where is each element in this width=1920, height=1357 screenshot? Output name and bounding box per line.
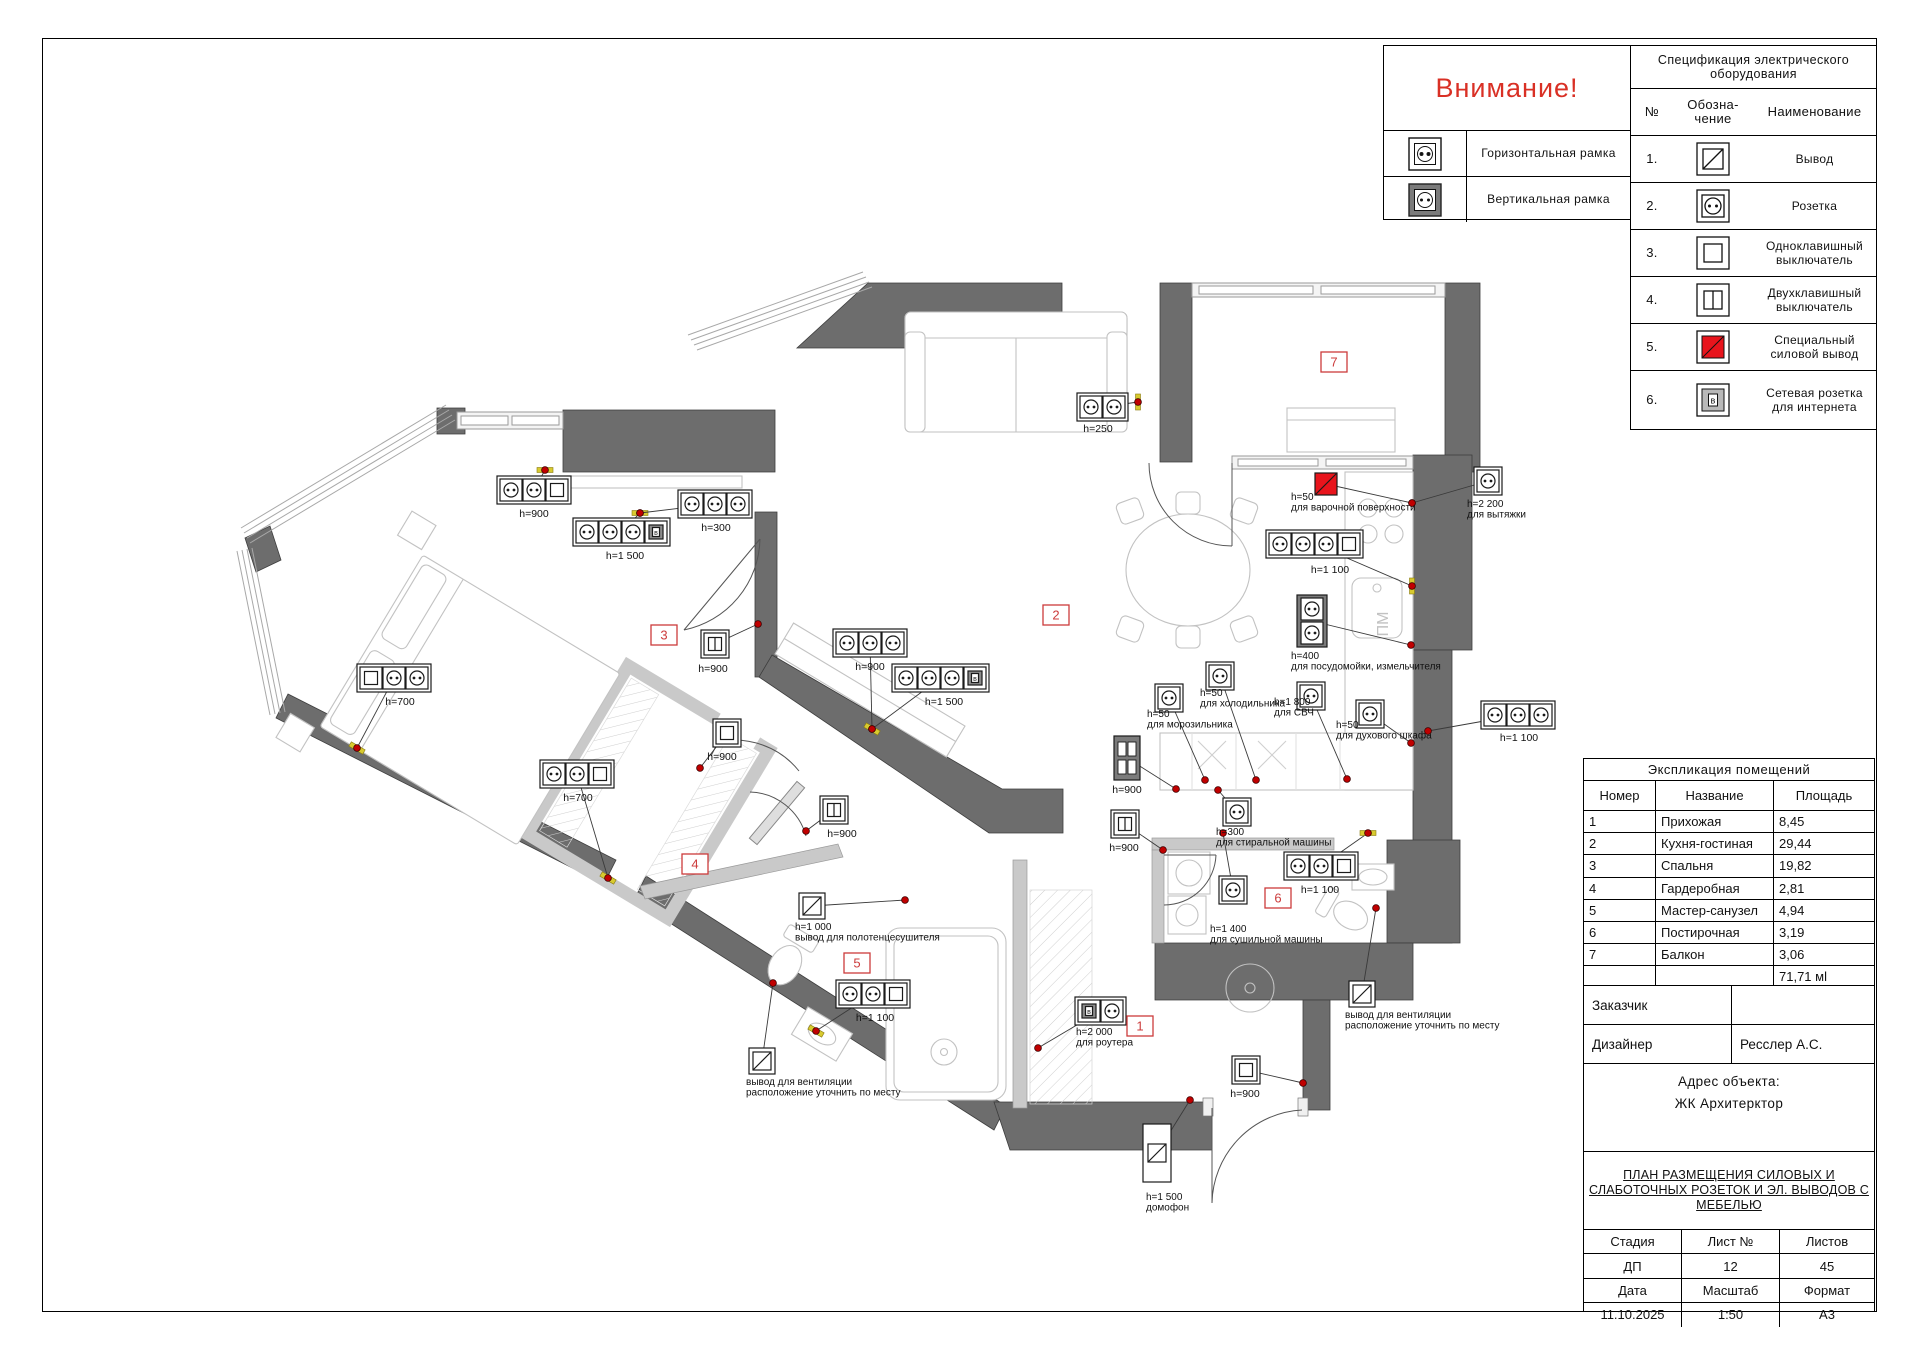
- spec-header-name: Наименование: [1753, 105, 1876, 119]
- spec-row: 4. Двухклавишный выключатель: [1631, 277, 1876, 324]
- svg-text:2: 2: [1052, 608, 1059, 623]
- svg-text:h=1 100: h=1 100: [1301, 884, 1339, 896]
- svg-text:h=900: h=900: [827, 828, 857, 840]
- svg-text:для морозильника: для морозильника: [1147, 720, 1233, 731]
- svg-text:для варочной поверхности: для варочной поверхности: [1291, 503, 1416, 514]
- device-washer-socket-300: [1223, 798, 1251, 826]
- svg-text:расположение уточнить по месту: расположение уточнить по месту: [1345, 1021, 1500, 1032]
- device-intercom-1500: [1143, 1124, 1171, 1182]
- device-right-sockets-1100: [1481, 701, 1555, 729]
- designer-label: Дизайнер: [1584, 1025, 1731, 1063]
- switch-double-icon: [1673, 282, 1753, 318]
- drawing-sheet: h=900вh=1 500h=300h=700h=700h=900h=900вh…: [0, 0, 1920, 1357]
- spec-header-num: №: [1631, 105, 1673, 119]
- svg-text:h=1 100: h=1 100: [856, 1012, 894, 1024]
- explication-row: 6Постирочная3,19: [1584, 922, 1874, 944]
- spec-row: 6. в Сетевая розетка для интернета: [1631, 371, 1876, 429]
- plan-text: ПМ: [1375, 612, 1392, 637]
- explication-row: 3Спальня19,82: [1584, 855, 1874, 877]
- svg-text:для посудомойки, измельчителя: для посудомойки, измельчителя: [1291, 662, 1441, 673]
- spec-row: 2. Розетка: [1631, 183, 1876, 230]
- svg-text:h=900: h=900: [698, 663, 728, 675]
- svg-text:h=50: h=50: [1336, 720, 1359, 731]
- device-hall-sockets-1500: в: [892, 664, 989, 692]
- svg-text:h=1 500: h=1 500: [1146, 1192, 1183, 1203]
- room-badge: 5: [844, 953, 870, 973]
- device-freezer-socket-50: [1155, 684, 1183, 712]
- spec-row: 5. Специальный силовой вывод: [1631, 324, 1876, 371]
- device-towel-dryer-out-1000: [799, 893, 825, 919]
- svg-text:h=1 400: h=1 400: [1210, 924, 1247, 935]
- spec-table: Спецификация электрического оборудования…: [1630, 45, 1877, 430]
- svg-text:h=50: h=50: [1200, 688, 1223, 699]
- svg-text:в: в: [1087, 1009, 1091, 1016]
- designer-row: Дизайнер Ресслер А.С.: [1584, 1025, 1874, 1064]
- svg-text:для духового шкафа: для духового шкафа: [1336, 730, 1432, 742]
- svg-text:в: в: [1710, 396, 1715, 406]
- device-bedroom-sockets-900: [497, 476, 571, 504]
- explication-table: Экспликация помещений Номер Название Пло…: [1583, 758, 1875, 989]
- svg-text:1: 1: [1136, 1019, 1143, 1034]
- svg-text:для холодильника: для холодильника: [1200, 699, 1286, 710]
- svg-text:7: 7: [1330, 355, 1337, 370]
- title-block: Заказчик Дизайнер Ресслер А.С. Адрес объ…: [1583, 985, 1875, 1312]
- attention-row: Горизонтальная рамка: [1384, 130, 1630, 176]
- vertical-frame-socket-icon: [1384, 177, 1467, 222]
- horizontal-frame-socket-icon: [1384, 131, 1467, 176]
- svg-text:h=400: h=400: [1291, 651, 1320, 662]
- room-badge: 3: [651, 625, 677, 645]
- device-laundry-sockets-1100: [1284, 852, 1358, 880]
- svg-text:h=900: h=900: [707, 751, 737, 763]
- device-bedroom-sockets-300: [678, 490, 752, 518]
- svg-text:h=50: h=50: [1291, 492, 1314, 503]
- svg-text:вывод для полотенцесушителя: вывод для полотенцесушителя: [795, 933, 940, 944]
- svg-text:h=900: h=900: [1230, 1088, 1260, 1100]
- room-badge: 1: [1127, 1016, 1153, 1036]
- svg-text:для СВЧ: для СВЧ: [1274, 708, 1314, 719]
- network-socket-icon: в: [1673, 382, 1753, 418]
- explication-row: 1Прихожая8,45: [1584, 811, 1874, 833]
- device-dryer-socket-1400: [1219, 876, 1247, 904]
- address-value: ЖК Архитерктор: [1675, 1096, 1784, 1111]
- svg-text:h=900: h=900: [855, 661, 885, 673]
- svg-text:h=700: h=700: [385, 696, 415, 708]
- device-kitchen-sockets-1100: [1266, 530, 1363, 558]
- switch-single-icon: [1673, 235, 1753, 271]
- svg-text:h=900: h=900: [1109, 842, 1139, 854]
- attention-block: Внимание! Горизонтальная рамка Вертикаль…: [1383, 45, 1631, 220]
- explication-row: 2Кухня-гостиная29,44: [1584, 833, 1874, 855]
- svg-text:h=50: h=50: [1147, 709, 1170, 720]
- device-kitchen-vswitch-900: [1114, 736, 1140, 780]
- device-dishwasher-sockets-400: [1297, 595, 1327, 647]
- device-bedroom-sockets-1500: в: [573, 518, 670, 546]
- svg-text:h=900: h=900: [1112, 784, 1142, 796]
- svg-text:для роутера: для роутера: [1076, 1038, 1133, 1049]
- svg-text:h=2 000: h=2 000: [1076, 1027, 1113, 1038]
- plan-texts-layer: ПМ: [1375, 612, 1392, 637]
- svg-text:h=1 100: h=1 100: [1500, 732, 1538, 744]
- spec-row: 1. Вывод: [1631, 136, 1876, 183]
- device-wardrobe-switch-900: [713, 719, 741, 747]
- address-label: Адрес объекта:: [1678, 1074, 1780, 1089]
- spec-title: Спецификация электрического оборудования: [1631, 46, 1876, 89]
- svg-text:3: 3: [660, 628, 667, 643]
- device-bedroom-sockets-700-left: [357, 664, 431, 692]
- svg-text:в: в: [654, 530, 658, 537]
- svg-text:h=900: h=900: [519, 508, 549, 520]
- out-icon: [1673, 141, 1753, 177]
- device-bedroom-door-switch-900: [701, 630, 729, 658]
- explication-row: 7Балкон3,06: [1584, 944, 1874, 966]
- device-hood-socket-2200: [1474, 467, 1502, 495]
- svg-text:расположение уточнить по месту: расположение уточнить по месту: [746, 1088, 901, 1099]
- svg-text:для вытяжки: для вытяжки: [1467, 510, 1526, 521]
- spec-row: 3. Одноклавишный выключатель: [1631, 230, 1876, 277]
- svg-text:h=1 800: h=1 800: [1274, 697, 1311, 708]
- attention-row-label: Вертикальная рамка: [1467, 177, 1630, 222]
- device-masterbath-sockets-1100: [836, 980, 910, 1008]
- attention-row: Вертикальная рамка: [1384, 176, 1630, 222]
- socket-icon: [1673, 188, 1753, 224]
- svg-text:5: 5: [853, 956, 860, 971]
- device-bedroom-sockets-700-right: [540, 760, 614, 788]
- device-masterbath-vent-out: [749, 1048, 775, 1074]
- address-block: Адрес объекта: ЖК Архитерктор: [1584, 1064, 1874, 1152]
- room-badge: 7: [1321, 352, 1347, 372]
- explication-header: Номер Название Площадь: [1584, 781, 1874, 811]
- svg-text:h=2 200: h=2 200: [1467, 499, 1504, 510]
- room-badge: 2: [1043, 605, 1069, 625]
- svg-text:домофон: домофон: [1146, 1202, 1189, 1214]
- svg-text:для стиральной машины: для стиральной машины: [1216, 838, 1331, 849]
- svg-text:h=700: h=700: [563, 792, 593, 804]
- room-badge: 6: [1265, 888, 1291, 908]
- stamp-grid: СтадияЛист №Листов ДП1245 ДатаМасштабФор…: [1584, 1230, 1874, 1327]
- svg-text:вывод для вентиляции: вывод для вентиляции: [1345, 1010, 1451, 1021]
- svg-text:в: в: [973, 676, 977, 683]
- svg-text:для сушильной машины: для сушильной машины: [1210, 935, 1323, 946]
- special-power-icon: [1673, 329, 1753, 365]
- svg-text:4: 4: [691, 857, 698, 872]
- room-badge: 4: [682, 854, 708, 874]
- device-kitchen-switch-900: [1111, 810, 1139, 838]
- customer-label: Заказчик: [1584, 986, 1731, 1024]
- device-entry-switch-900: [1232, 1056, 1260, 1084]
- svg-text:h=1 000: h=1 000: [795, 922, 832, 933]
- attention-row-label: Горизонтальная рамка: [1467, 131, 1630, 176]
- device-fridge-socket-50: [1206, 662, 1234, 690]
- device-laundry-vent-out: [1349, 981, 1375, 1007]
- designer-value: Ресслер А.С.: [1731, 1025, 1874, 1063]
- explication-row: 5Мастер-санузел4,94: [1584, 900, 1874, 922]
- explication-title: Экспликация помещений: [1584, 759, 1874, 781]
- device-oven-socket-50: [1356, 700, 1384, 728]
- svg-text:h=1 500: h=1 500: [925, 696, 963, 708]
- device-hall-sockets-900: [833, 629, 907, 657]
- device-router-sockets-2000: в: [1075, 997, 1126, 1025]
- spec-header: № Обозна-чение Наименование: [1631, 89, 1876, 136]
- svg-text:вывод для вентиляции: вывод для вентиляции: [746, 1077, 852, 1088]
- svg-text:h=1 100: h=1 100: [1311, 564, 1349, 576]
- customer-value: [1731, 986, 1874, 1024]
- svg-text:6: 6: [1274, 891, 1281, 906]
- svg-text:h=300: h=300: [701, 522, 731, 534]
- doc-title: ПЛАН РАЗМЕЩЕНИЯ СИЛОВЫХ И СЛАБОТОЧНЫХ РО…: [1584, 1152, 1874, 1230]
- device-hob-power-50: [1315, 473, 1337, 495]
- svg-text:h=300: h=300: [1216, 827, 1245, 838]
- customer-row: Заказчик: [1584, 986, 1874, 1025]
- device-hall-switch-900: [820, 796, 848, 824]
- spec-header-symbol: Обозна-чение: [1673, 98, 1753, 126]
- svg-text:h=250: h=250: [1083, 423, 1113, 435]
- device-sofa-sockets-250: [1077, 393, 1128, 421]
- explication-row: 4Гардеробная2,81: [1584, 878, 1874, 900]
- svg-text:h=1 500: h=1 500: [606, 550, 644, 562]
- attention-title: Внимание!: [1384, 46, 1630, 130]
